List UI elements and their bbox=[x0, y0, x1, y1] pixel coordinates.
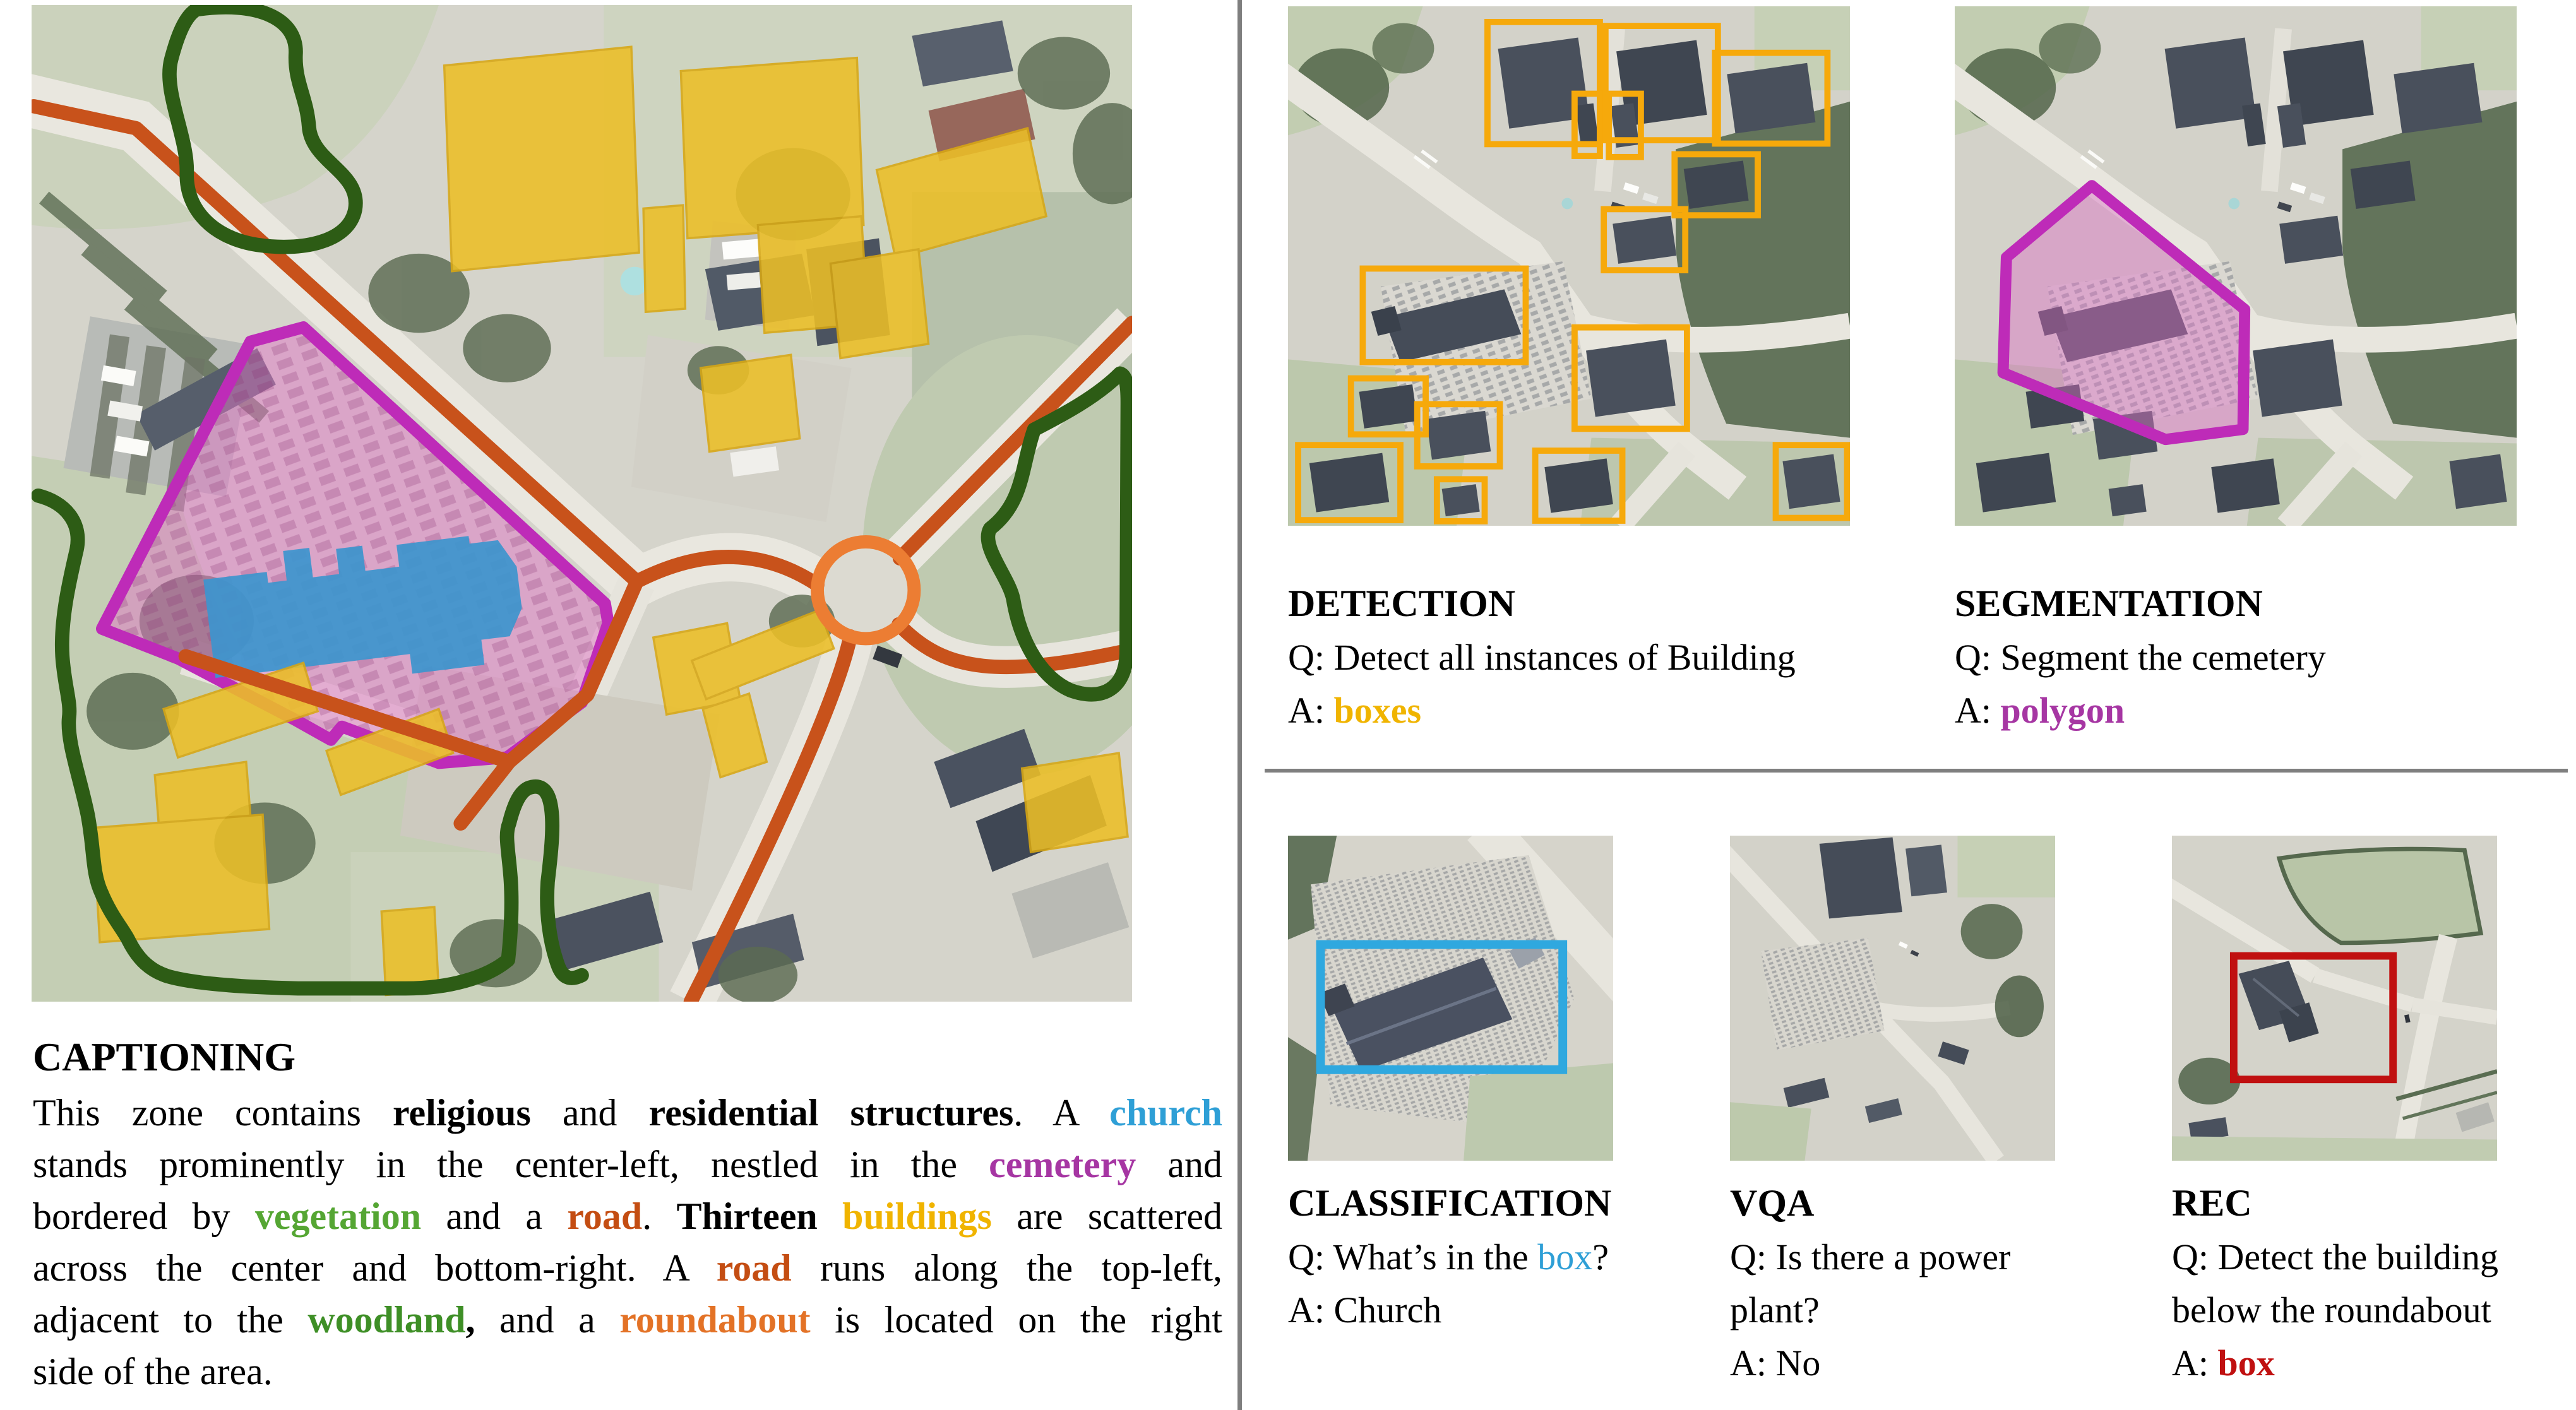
segmentation-svg bbox=[1955, 6, 2517, 526]
roof bbox=[2394, 63, 2482, 134]
detection-text-block: DETECTION Q: Detect all instances of Bui… bbox=[1288, 578, 1926, 737]
roof bbox=[1613, 216, 1676, 264]
building-polygon bbox=[681, 58, 863, 239]
classification-question: Q: What’s in the box? bbox=[1288, 1231, 1705, 1284]
building-polygon bbox=[444, 47, 640, 271]
horizontal-divider bbox=[1265, 769, 2568, 773]
captioning-title: CAPTIONING bbox=[33, 1033, 1222, 1082]
vqa-aerial-image bbox=[1730, 836, 2055, 1161]
classification-svg bbox=[1288, 836, 1613, 1161]
roof bbox=[1727, 63, 1815, 134]
roof bbox=[1544, 458, 1613, 512]
roof bbox=[1684, 161, 1749, 209]
roof bbox=[1976, 453, 2056, 512]
rec-question: Q: Detect the buildingbelow the roundabo… bbox=[2172, 1231, 2576, 1337]
building-polygon bbox=[1022, 753, 1128, 852]
vertical-divider bbox=[1237, 0, 1242, 1410]
roof bbox=[2109, 484, 2147, 516]
vqa-answer: A: No bbox=[1730, 1337, 2121, 1390]
segmentation-aerial-image bbox=[1955, 6, 2517, 526]
segmentation-title: SEGMENTATION bbox=[1955, 578, 2561, 629]
vqa-question: Q: Is there a powerplant? bbox=[1730, 1231, 2121, 1337]
roof bbox=[2449, 454, 2507, 509]
captioning-block: CAPTIONING This zone contains religious … bbox=[33, 1033, 1222, 1397]
classification-title: CLASSIFICATION bbox=[1288, 1178, 1705, 1228]
detection-question: Q: Detect all instances of Building bbox=[1288, 631, 1926, 684]
rec-aerial-image bbox=[2172, 836, 2497, 1161]
classification-aerial-image bbox=[1288, 836, 1613, 1161]
building-polygon bbox=[830, 249, 928, 358]
figure-page: CAPTIONING This zone contains religious … bbox=[0, 0, 2576, 1410]
segmentation-text-block: SEGMENTATION Q: Segment the cemetery A: … bbox=[1955, 578, 2561, 737]
vqa-title: VQA bbox=[1730, 1178, 2121, 1228]
captioning-aerial-image bbox=[32, 5, 1132, 1002]
classification-text-block: CLASSIFICATION Q: What’s in the box? A: … bbox=[1288, 1178, 1705, 1337]
roof bbox=[2279, 216, 2343, 264]
detection-aerial-image bbox=[1288, 6, 1850, 526]
detection-answer: A: boxes bbox=[1288, 684, 1926, 737]
building-polygon bbox=[643, 205, 685, 312]
roof bbox=[1442, 484, 1480, 516]
rec-svg bbox=[2172, 836, 2497, 1161]
detection-svg bbox=[1288, 6, 1850, 526]
vqa-svg bbox=[1730, 836, 2055, 1161]
roof bbox=[1586, 340, 1676, 417]
roof bbox=[2253, 340, 2342, 417]
segmentation-question: Q: Segment the cemetery bbox=[1955, 631, 2561, 684]
main-map-svg bbox=[32, 5, 1132, 1002]
rec-text-block: REC Q: Detect the buildingbelow the roun… bbox=[2172, 1178, 2576, 1390]
detection-title: DETECTION bbox=[1288, 578, 1926, 629]
roof bbox=[1426, 411, 1491, 459]
rec-title: REC bbox=[2172, 1178, 2576, 1228]
roof bbox=[1782, 454, 1840, 509]
roof bbox=[2165, 37, 2257, 128]
captioning-text: This zone contains religious and residen… bbox=[33, 1087, 1222, 1397]
rec-answer: A: box bbox=[2172, 1337, 2576, 1390]
classification-answer: A: Church bbox=[1288, 1284, 1705, 1337]
vqa-text-block: VQA Q: Is there a powerplant? A: No bbox=[1730, 1178, 2121, 1390]
roof bbox=[2351, 161, 2416, 209]
roof bbox=[1359, 384, 1418, 429]
roof bbox=[2211, 458, 2280, 512]
building-polygon bbox=[701, 355, 800, 451]
roof bbox=[1309, 453, 1389, 512]
segmentation-answer: A: polygon bbox=[1955, 684, 2561, 737]
